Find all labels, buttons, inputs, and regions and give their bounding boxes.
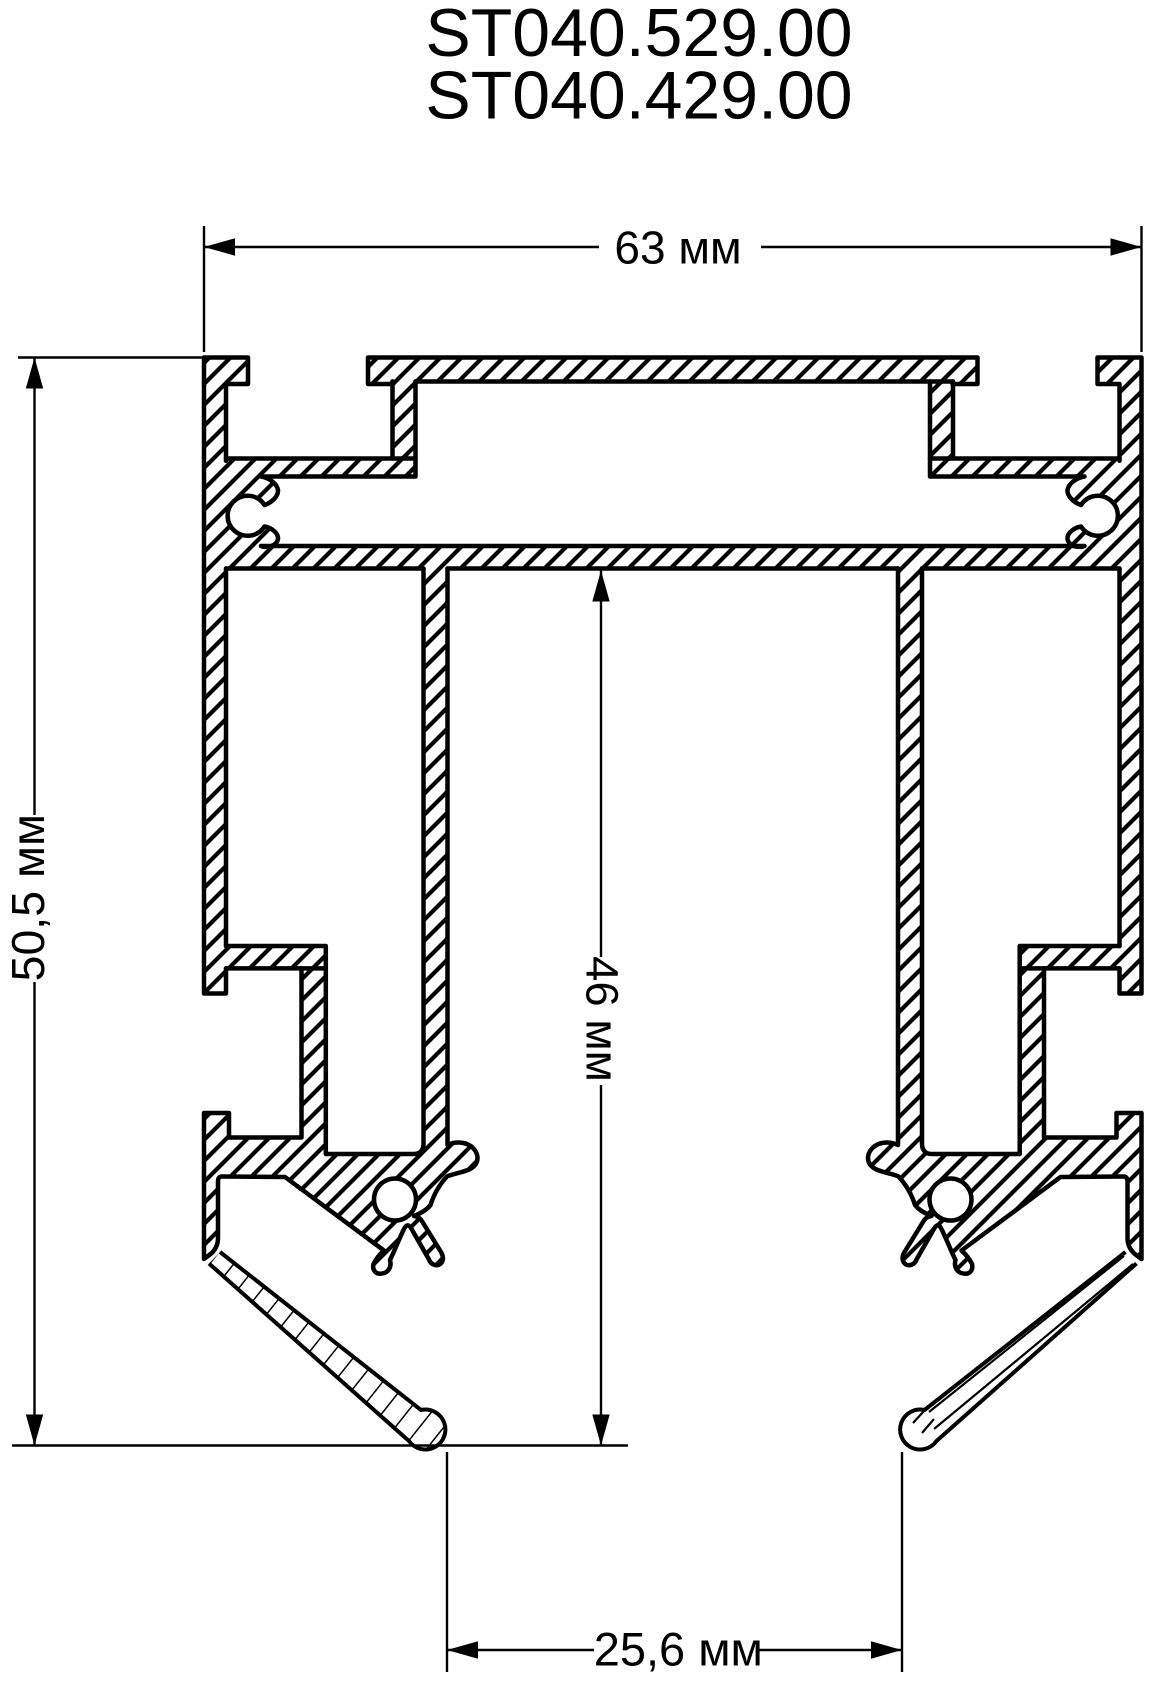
svg-text:ST040.429.00: ST040.429.00 bbox=[425, 58, 852, 134]
svg-text:50,5 мм: 50,5 мм bbox=[2, 814, 54, 981]
svg-text:25,6 мм: 25,6 мм bbox=[594, 1623, 763, 1676]
svg-text:46 мм: 46 мм bbox=[577, 956, 628, 1082]
svg-text:63 мм: 63 мм bbox=[614, 222, 741, 274]
